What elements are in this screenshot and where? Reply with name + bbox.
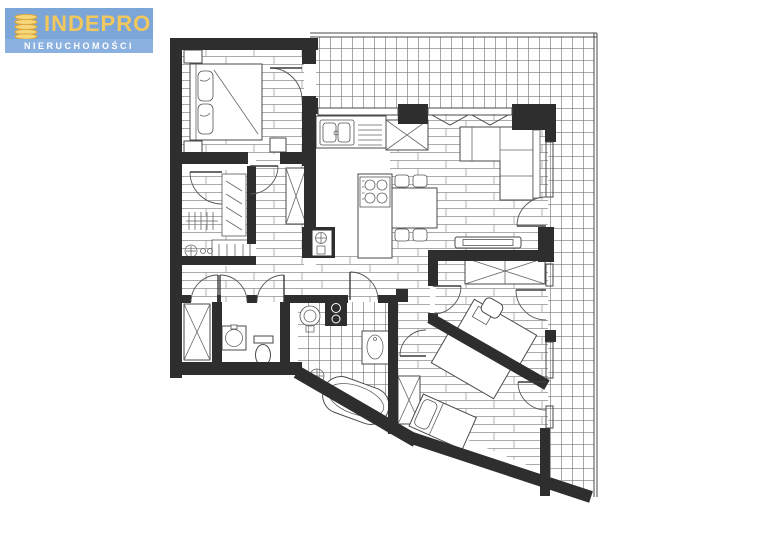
double-bed: [190, 64, 262, 140]
utility-shaft-meter: [312, 230, 332, 256]
page: INDEPRO NIERUCHOMOŚCI: [0, 0, 777, 546]
vanity-washbasin: [362, 331, 389, 364]
closet-cabinet: [184, 304, 210, 360]
fridge-cabinet: [386, 120, 428, 150]
bedroom2-wardrobe: [465, 258, 545, 284]
floor-plan-drawing: [0, 0, 777, 546]
kitchen-counter-sink: [316, 116, 386, 148]
nightstand-top: [184, 50, 202, 63]
dresser: [270, 138, 286, 152]
kitchen-island-hob: [358, 174, 392, 258]
wc-washbasin: [222, 325, 246, 350]
stacked-washer-dryer: [325, 300, 347, 326]
corridor-tall-cabinet: [286, 168, 306, 224]
tv-cabinet: [455, 237, 521, 248]
